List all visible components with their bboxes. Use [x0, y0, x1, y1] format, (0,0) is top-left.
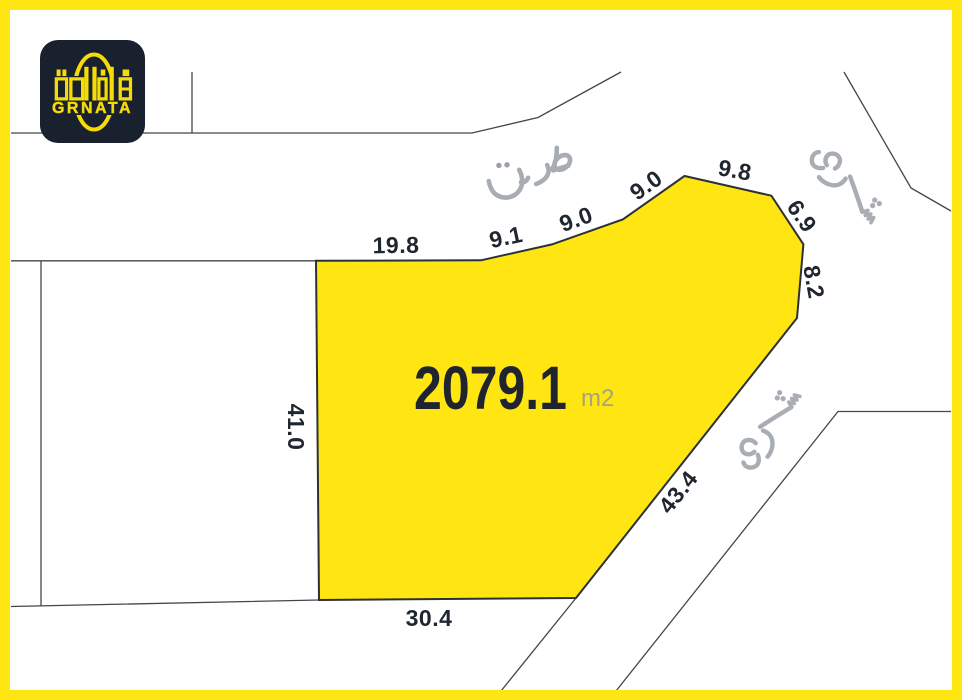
svg-text:41.0: 41.0 [283, 404, 309, 451]
svg-text:m2: m2 [581, 385, 614, 412]
svg-text:GRNATA: GRNATA [52, 100, 133, 117]
svg-text:2079.1: 2079.1 [414, 354, 567, 422]
svg-text:30.4: 30.4 [406, 605, 453, 631]
svg-text:19.8: 19.8 [372, 232, 419, 259]
